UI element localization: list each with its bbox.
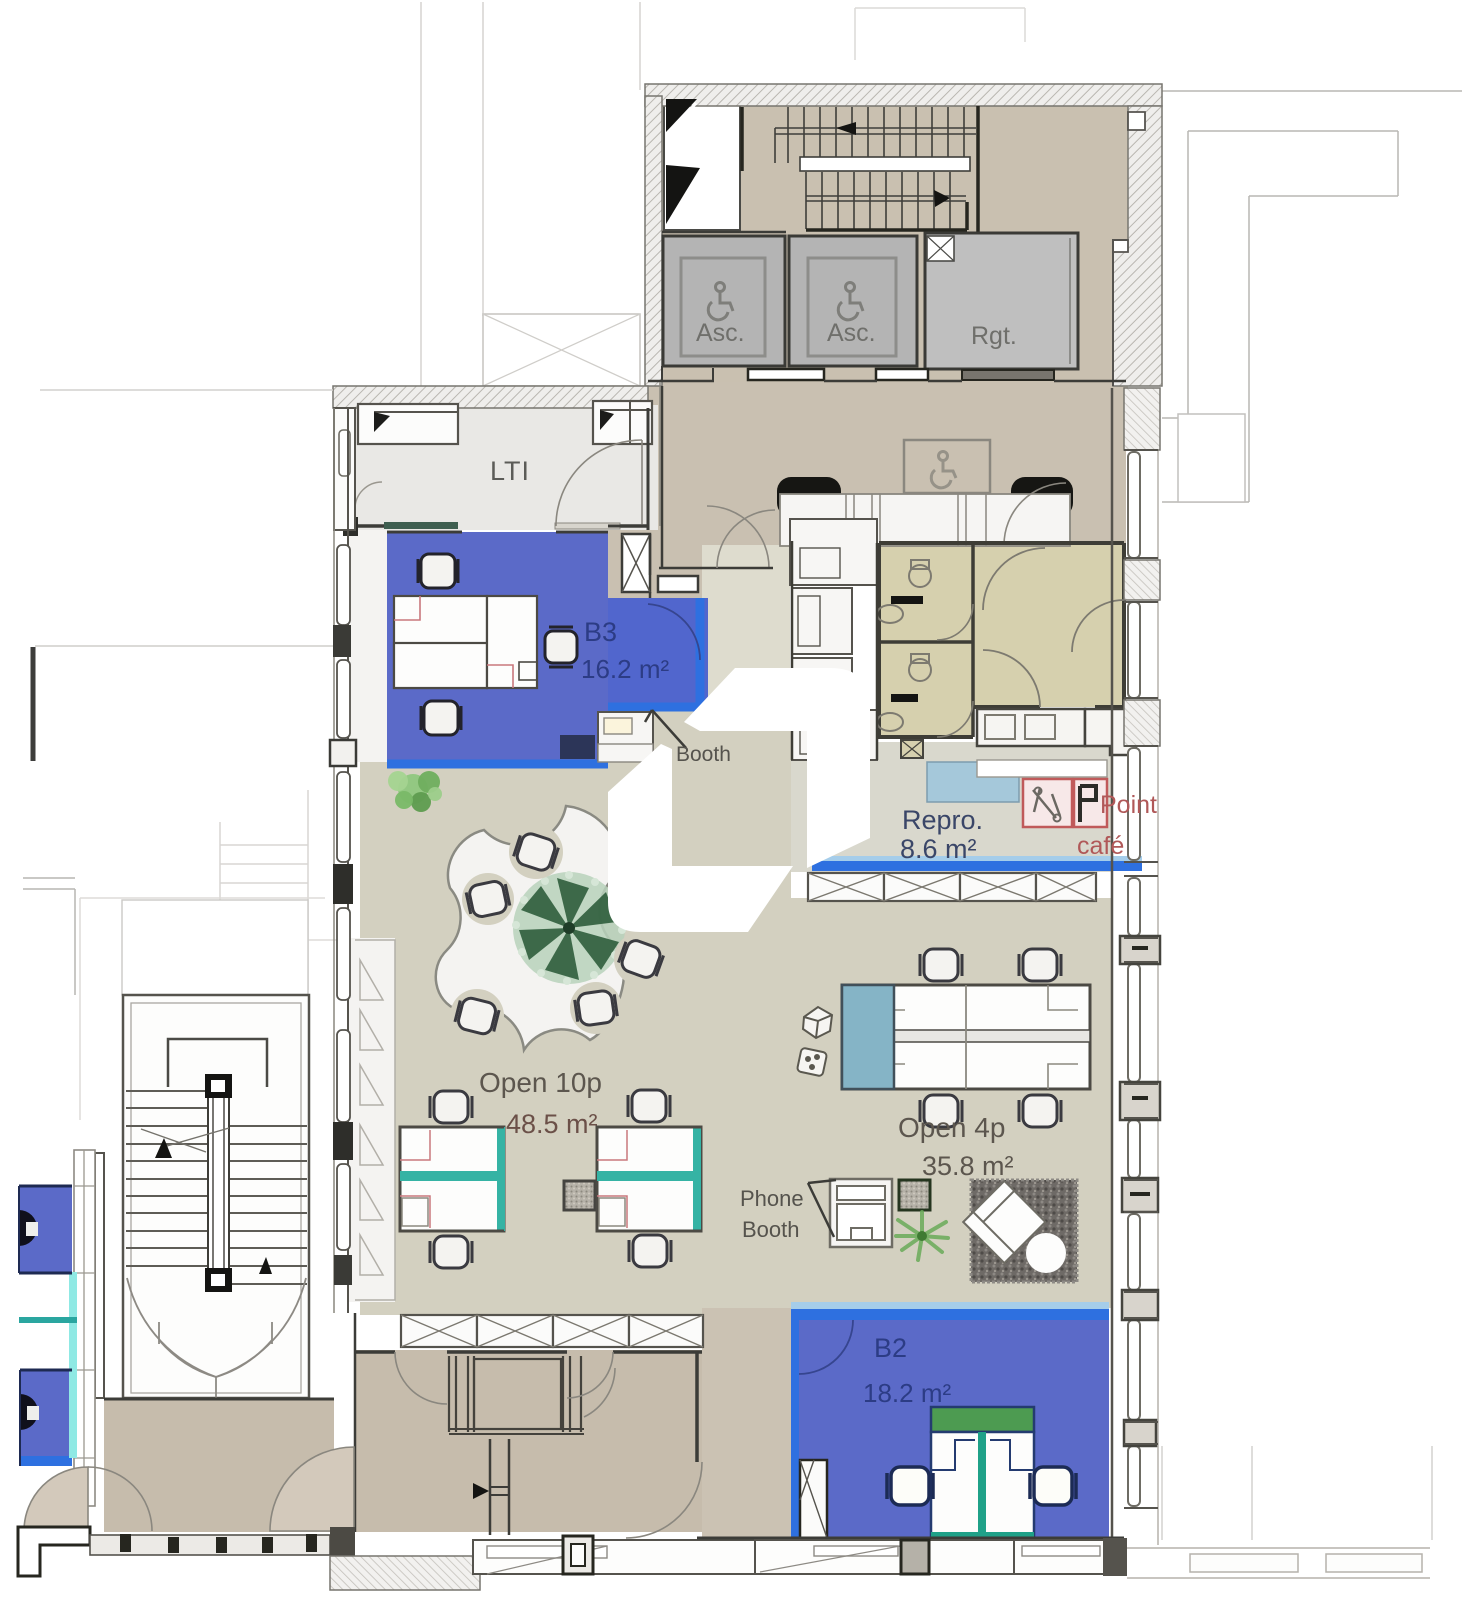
svg-text:Open 10p: Open 10p bbox=[479, 1067, 602, 1098]
svg-text:18.2 m²: 18.2 m² bbox=[863, 1378, 951, 1408]
svg-text:Booth: Booth bbox=[742, 1217, 800, 1242]
svg-text:35.8 m²: 35.8 m² bbox=[922, 1151, 1014, 1181]
svg-text:café: café bbox=[1077, 832, 1124, 860]
svg-text:48.5 m²: 48.5 m² bbox=[506, 1109, 598, 1139]
svg-text:Asc.: Asc. bbox=[827, 319, 876, 347]
svg-text:Point: Point bbox=[1100, 791, 1157, 819]
svg-text:Phone: Phone bbox=[740, 1186, 804, 1211]
svg-text:Rgt.: Rgt. bbox=[971, 322, 1017, 350]
svg-text:Open 4p: Open 4p bbox=[898, 1112, 1005, 1143]
svg-text:Repro.: Repro. bbox=[902, 805, 983, 835]
svg-text:B3: B3 bbox=[584, 617, 617, 647]
svg-text:Asc.: Asc. bbox=[696, 319, 745, 347]
svg-text:B2: B2 bbox=[874, 1333, 907, 1363]
svg-text:16.2 m²: 16.2 m² bbox=[581, 654, 669, 684]
svg-text:Booth: Booth bbox=[676, 743, 731, 766]
svg-text:LTI: LTI bbox=[490, 456, 530, 486]
svg-text:8.6 m²: 8.6 m² bbox=[900, 834, 977, 864]
